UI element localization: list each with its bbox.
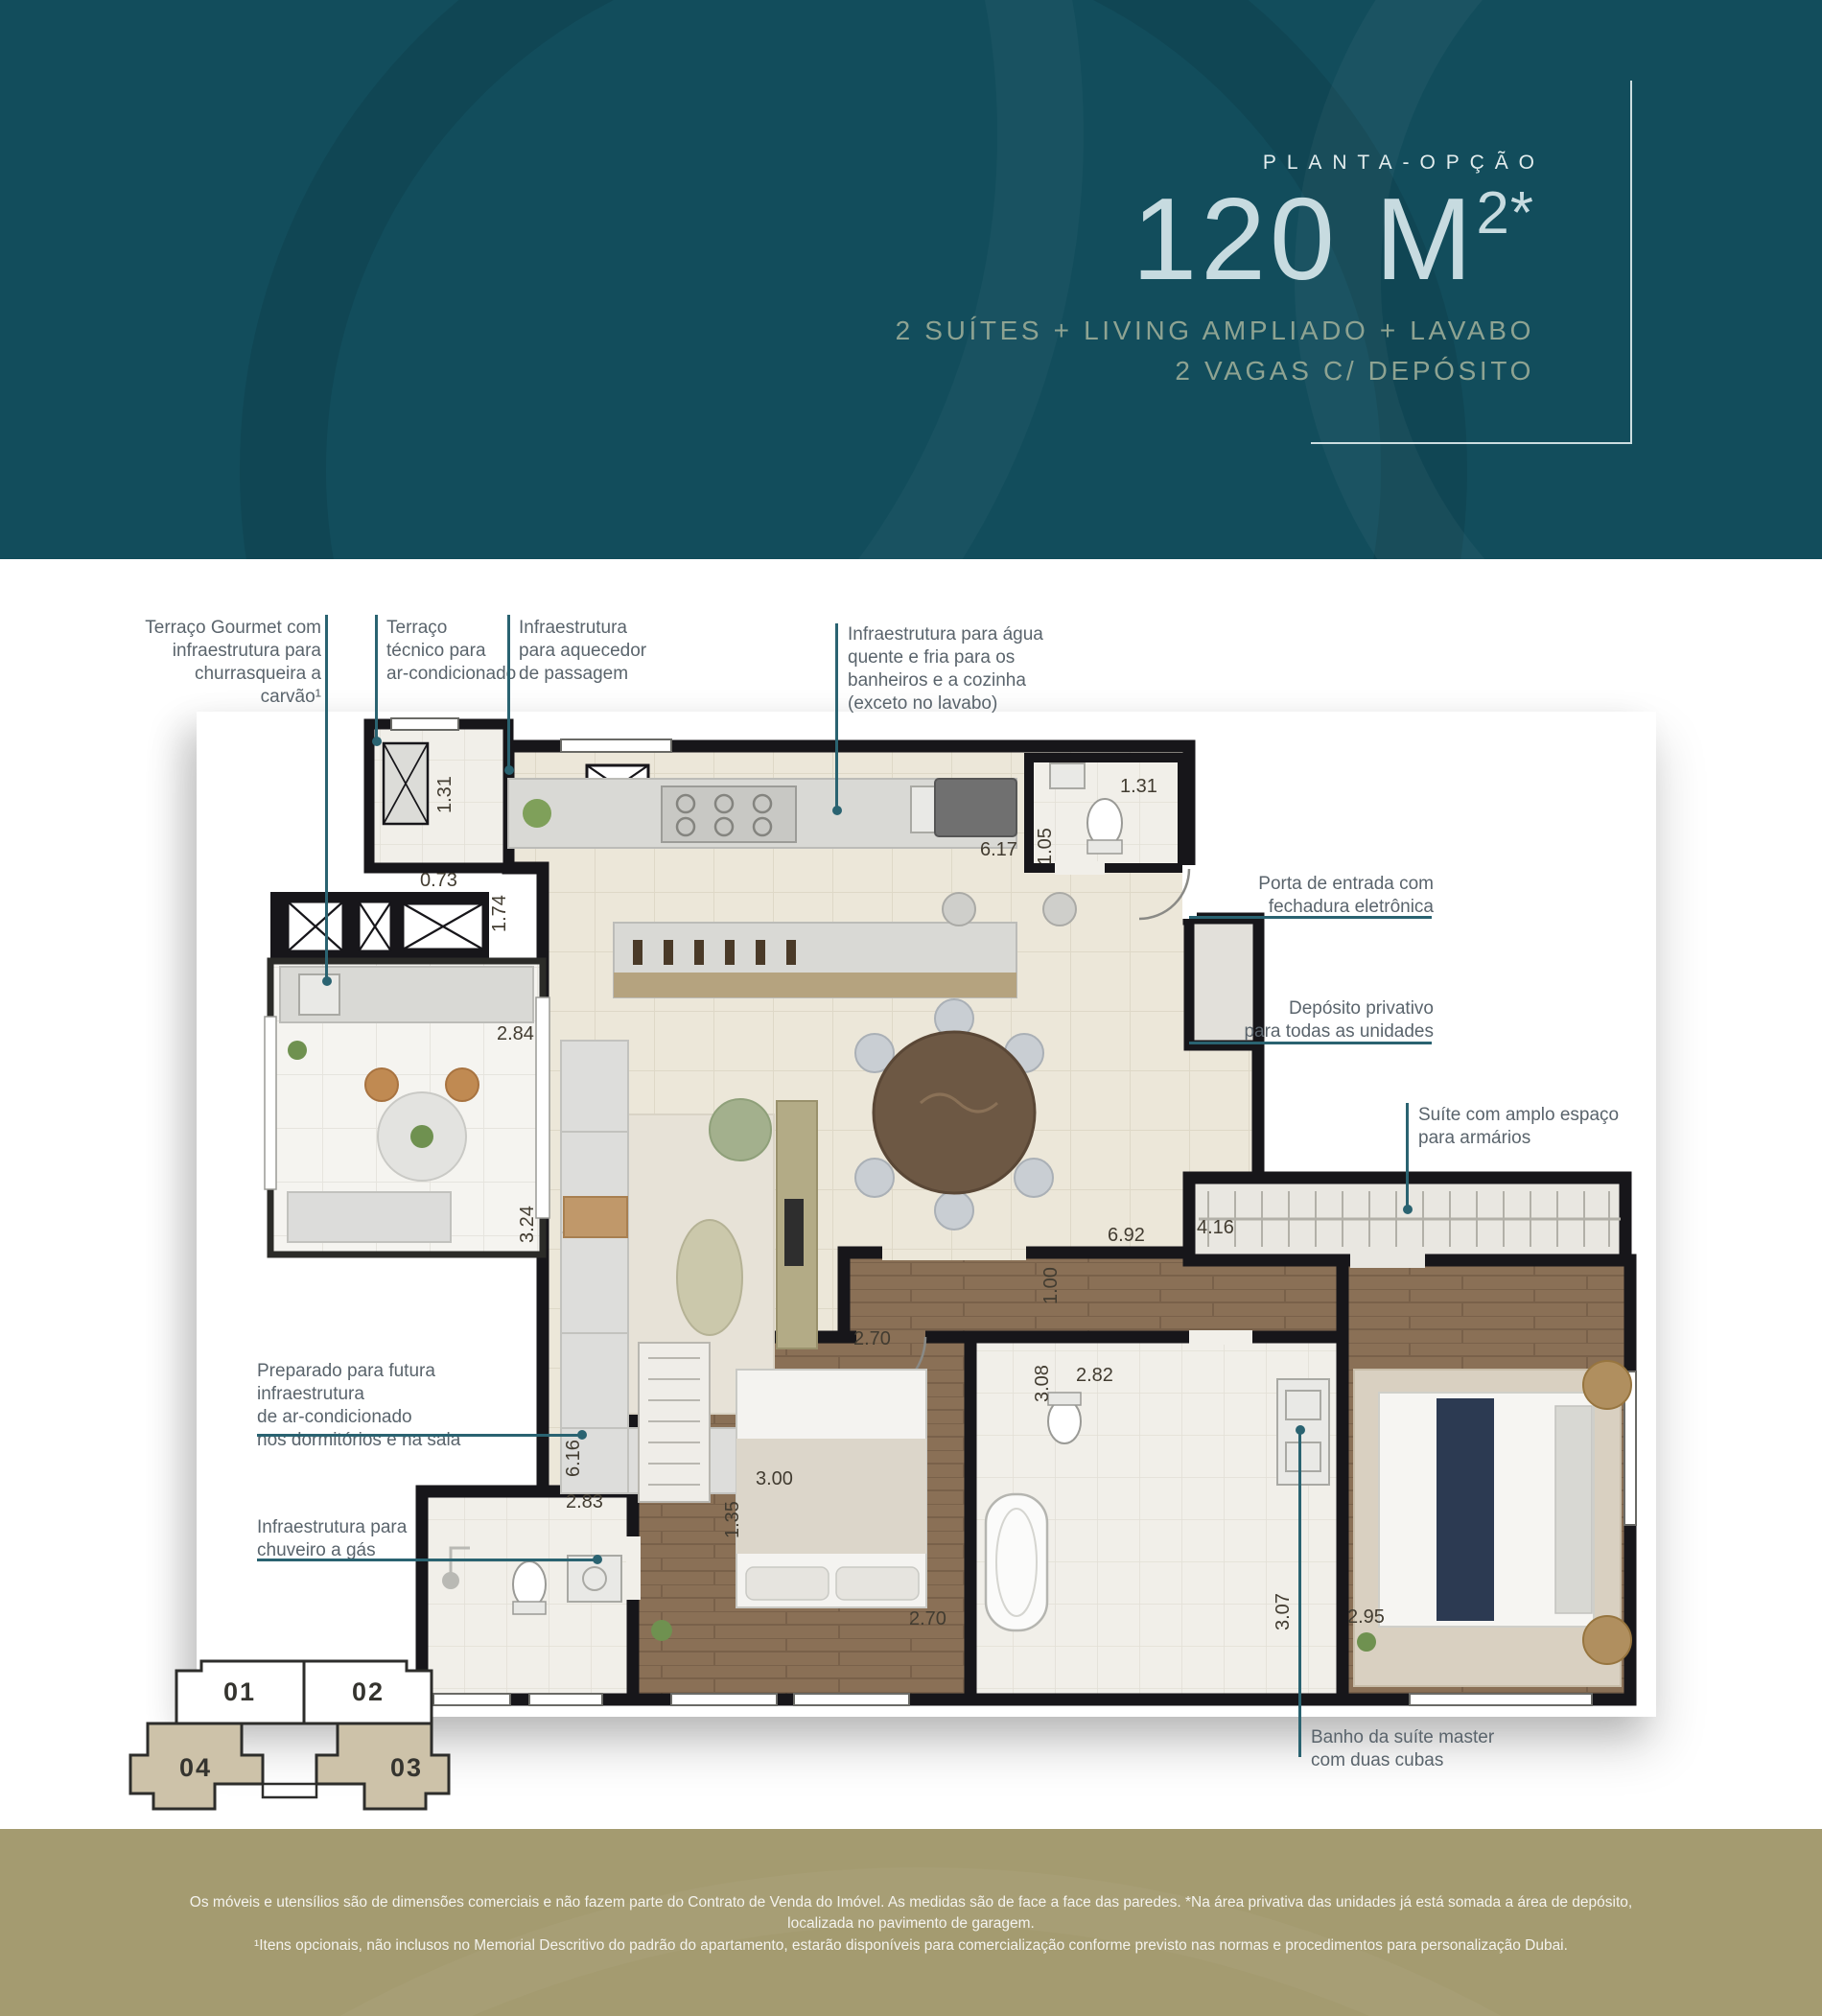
lavabo-sink: [1050, 763, 1085, 788]
grill-sink: [299, 974, 339, 1015]
suite-master-door-gap: [1350, 1254, 1425, 1268]
leader-line: [375, 615, 378, 741]
leader-dot: [372, 737, 382, 746]
flyer-page: PLANTA-OPÇÃO 120 M2* 2 SUÍTES + LIVING A…: [0, 0, 1822, 2016]
hero-title-block: PLANTA-OPÇÃO 120 M2* 2 SUÍTES + LIVING A…: [896, 152, 1534, 391]
dimension-label: 1.74: [489, 895, 510, 932]
bath-master-door-gap: [1189, 1330, 1252, 1345]
plan-kicker: PLANTA-OPÇÃO: [896, 152, 1545, 175]
stool: [943, 893, 975, 926]
leader-dot: [322, 976, 332, 986]
dimension-label: 1.00: [1040, 1267, 1062, 1304]
corridor-opening: [882, 1246, 1026, 1260]
subtitle-line-2: 2 VAGAS C/ DEPÓSITO: [896, 351, 1534, 391]
toilet-tank: [1087, 840, 1122, 854]
plant: [651, 1620, 672, 1641]
callout-preparado-ar: Preparado para futura infraestrutura de …: [257, 1360, 497, 1453]
dimension-label: 6.16: [563, 1440, 584, 1477]
dimension-label: 1.31: [1120, 776, 1157, 797]
lavabo-door-gap: [1055, 861, 1105, 875]
area-superscript: 2*: [1476, 180, 1534, 246]
plant: [1357, 1632, 1376, 1652]
window: [794, 1694, 909, 1705]
dimension-label: 4.16: [1197, 1217, 1234, 1238]
dimension-label: 2.95: [1347, 1606, 1385, 1628]
callout-chuveiro-gas: Infraestrutura para chuveiro a gás: [257, 1516, 458, 1562]
keyplan-label-04: 04: [179, 1753, 212, 1782]
callout-suite-armarios: Suíte com amplo espaço para armários: [1418, 1104, 1629, 1150]
pillows-master: [1555, 1406, 1592, 1613]
leader-line: [325, 615, 328, 981]
leader-dot: [1296, 1425, 1305, 1435]
dimension-label: 2.82: [1076, 1365, 1113, 1386]
disclaimer-line-1: Os móveis e utensílios são de dimensões …: [163, 1892, 1659, 1935]
dimension-label: 2.84: [497, 1023, 534, 1044]
window: [671, 1694, 777, 1705]
terrace-chair: [365, 1068, 398, 1101]
callout-terraco-tecnico: Terraço técnico para ar-condicionado: [386, 617, 540, 686]
nightstand: [1583, 1361, 1631, 1409]
bath2-door-gap: [626, 1536, 641, 1600]
toilet: [513, 1561, 546, 1607]
stool: [1043, 893, 1076, 926]
callout-agua-quente: Infraestrutura para água quente e fria p…: [848, 623, 1078, 716]
dimension-label: 3.07: [1273, 1593, 1294, 1630]
terrace-chair: [446, 1068, 479, 1101]
dimension-label: 3.24: [517, 1206, 538, 1243]
pillow: [746, 1567, 829, 1600]
leader-line: [1298, 1429, 1301, 1757]
bathtub: [986, 1494, 1047, 1630]
bed-runner-navy: [1437, 1398, 1494, 1621]
leader-dot: [577, 1430, 587, 1440]
dimension-label: 1.31: [434, 776, 455, 813]
window: [561, 739, 671, 752]
plant: [410, 1125, 433, 1148]
leader-line: [507, 615, 510, 770]
terrace-rail: [265, 1017, 276, 1189]
pillow: [836, 1567, 919, 1600]
callout-terraco-gourmet: Terraço Gourmet com infraestrutura para …: [134, 617, 321, 710]
coffee-table: [677, 1220, 742, 1335]
keyplan-label-01: 01: [223, 1677, 256, 1706]
page-title: 120 M2*: [896, 180, 1534, 297]
disclaimer-line-2: ¹Itens opcionais, não inclusos no Memori…: [163, 1935, 1659, 1957]
dimension-label: 1.35: [722, 1501, 743, 1538]
sofa: [561, 1041, 628, 1493]
leader-line: [1189, 1042, 1432, 1044]
dimension-label: 6.92: [1108, 1225, 1145, 1246]
leader-line: [1189, 916, 1432, 919]
terrace-bench: [288, 1192, 451, 1242]
keyplan-label-02: 02: [352, 1677, 385, 1706]
dimension-label: 3.08: [1032, 1365, 1053, 1402]
pouf: [710, 1099, 771, 1160]
dimension-label: 6.17: [980, 839, 1017, 860]
suite-master: [1354, 1361, 1631, 1686]
dimension-label: 2.70: [909, 1608, 946, 1629]
leader-line: [835, 623, 838, 811]
keyplan-connector: [263, 1784, 316, 1797]
keyplan-label-03: 03: [390, 1753, 423, 1782]
dimension-label: 2.70: [853, 1328, 891, 1349]
footer-band: Os móveis e utensílios são de dimensões …: [0, 1829, 1822, 2016]
side-table: [564, 1197, 627, 1237]
callout-porta-entrada: Porta de entrada com fechadura eletrônic…: [1237, 873, 1434, 919]
toilet-tank: [1048, 1393, 1081, 1405]
leader-line: [257, 1434, 583, 1437]
keyplan-unit-03: [316, 1723, 449, 1809]
header-banner: PLANTA-OPÇÃO 120 M2* 2 SUÍTES + LIVING A…: [0, 0, 1822, 559]
tv: [784, 1199, 804, 1266]
toilet-tank: [513, 1602, 546, 1614]
plant: [523, 799, 551, 828]
leader-dot: [1403, 1205, 1413, 1214]
callout-deposito: Depósito privativo para todas as unidade…: [1237, 997, 1434, 1043]
dimension-label: 3.00: [756, 1468, 793, 1489]
blanket: [736, 1439, 926, 1554]
nightstand: [1583, 1616, 1631, 1664]
subtitle-line-1: 2 SUÍTES + LIVING AMPLIADO + LAVABO: [896, 311, 1534, 351]
leader-dot: [504, 765, 514, 775]
callout-aquecedor: Infraestrutura para aquecedor de passage…: [519, 617, 672, 686]
keyplan: 01 02 04 03: [107, 1640, 476, 1824]
terrace-sliding-door: [536, 997, 549, 1218]
leader-line: [1406, 1103, 1409, 1210]
dimension-label: 1.05: [1035, 828, 1056, 865]
area-value: 120 M: [1132, 174, 1476, 304]
toilet: [1048, 1399, 1081, 1443]
leader-line: [257, 1559, 599, 1561]
plant: [288, 1041, 307, 1060]
callout-banho-master: Banho da suíte master com duas cubas: [1311, 1726, 1522, 1772]
dimension-label: 0.73: [420, 870, 457, 891]
leader-dot: [832, 806, 842, 815]
window: [1410, 1694, 1592, 1705]
window: [529, 1694, 602, 1705]
window: [391, 718, 458, 730]
appliance-cabinet: [935, 779, 1016, 836]
dining-table: [874, 1032, 1035, 1193]
island-front: [614, 973, 1016, 997]
dimension-label: 2.83: [566, 1491, 603, 1512]
leader-dot: [593, 1555, 602, 1564]
